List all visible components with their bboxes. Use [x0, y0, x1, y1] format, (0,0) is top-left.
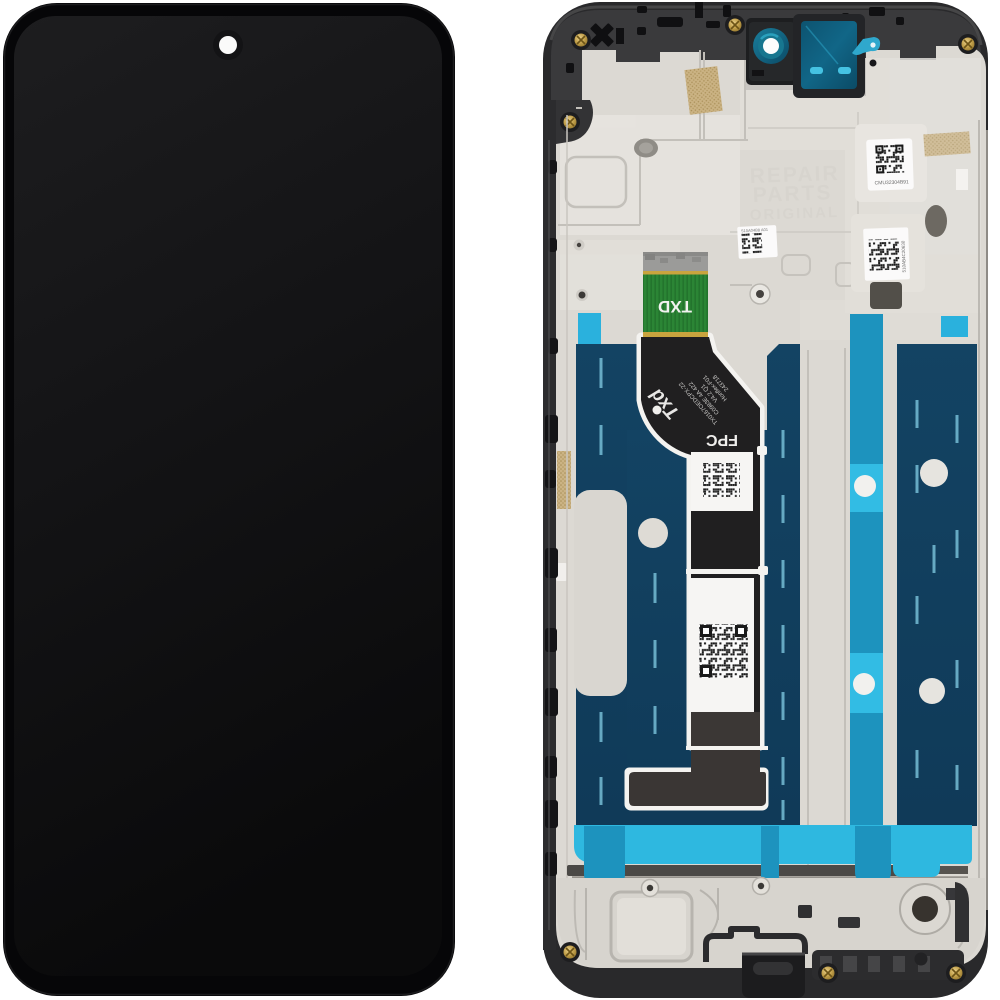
svg-text:TXD: TXD	[658, 297, 692, 316]
svg-text:FPC: FPC	[706, 431, 738, 448]
svg-text:ORIGINAL: ORIGINAL	[750, 204, 840, 224]
svg-text:PARTS: PARTS	[752, 181, 832, 207]
svg-text:CMU32304B91: CMU32304B91	[875, 179, 910, 186]
